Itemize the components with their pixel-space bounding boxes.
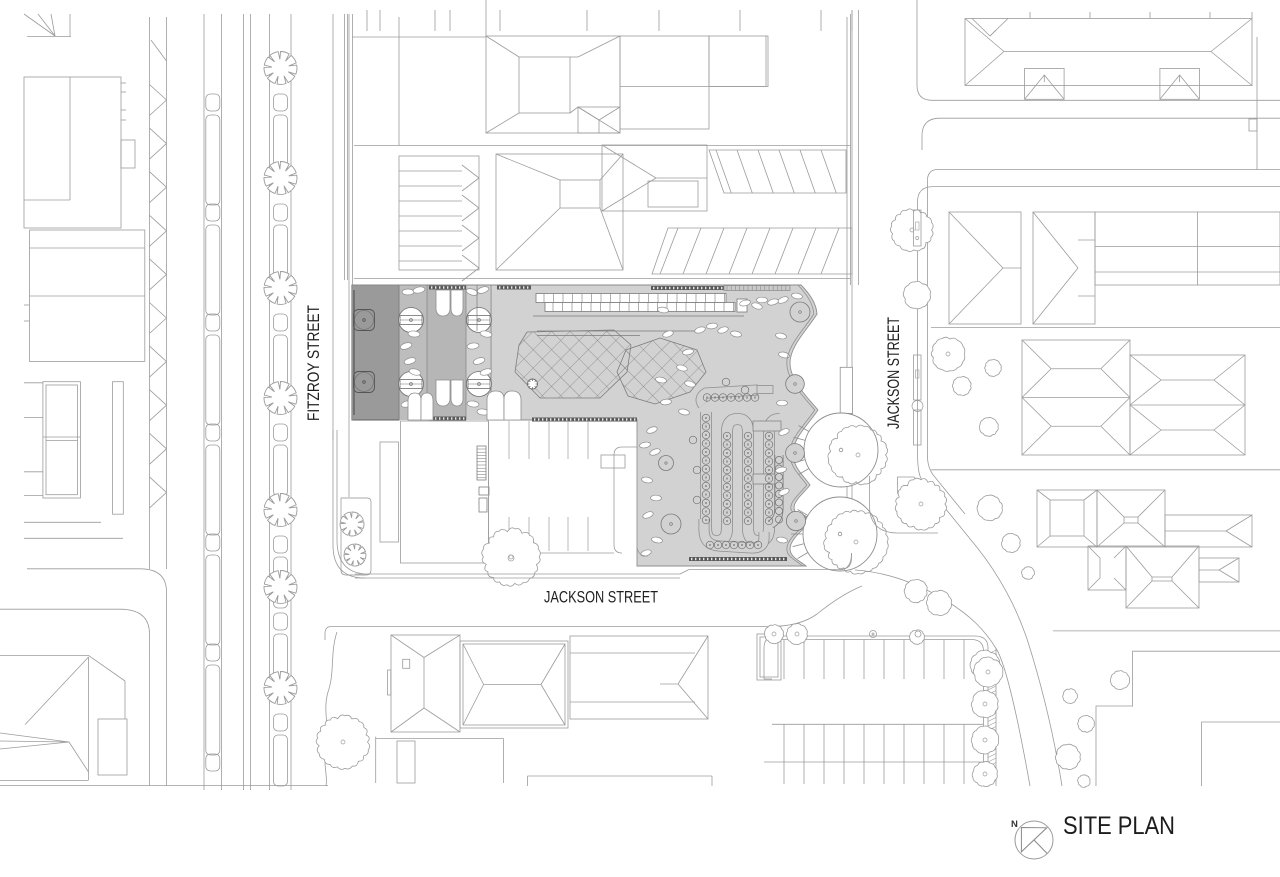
svg-text:FITZROY STREET: FITZROY STREET [305,305,323,421]
svg-text:N: N [1011,819,1018,830]
svg-text:SITE PLAN: SITE PLAN [1063,812,1175,840]
svg-text:JACKSON STREET: JACKSON STREET [885,317,903,429]
svg-text:JACKSON STREET: JACKSON STREET [544,589,658,607]
